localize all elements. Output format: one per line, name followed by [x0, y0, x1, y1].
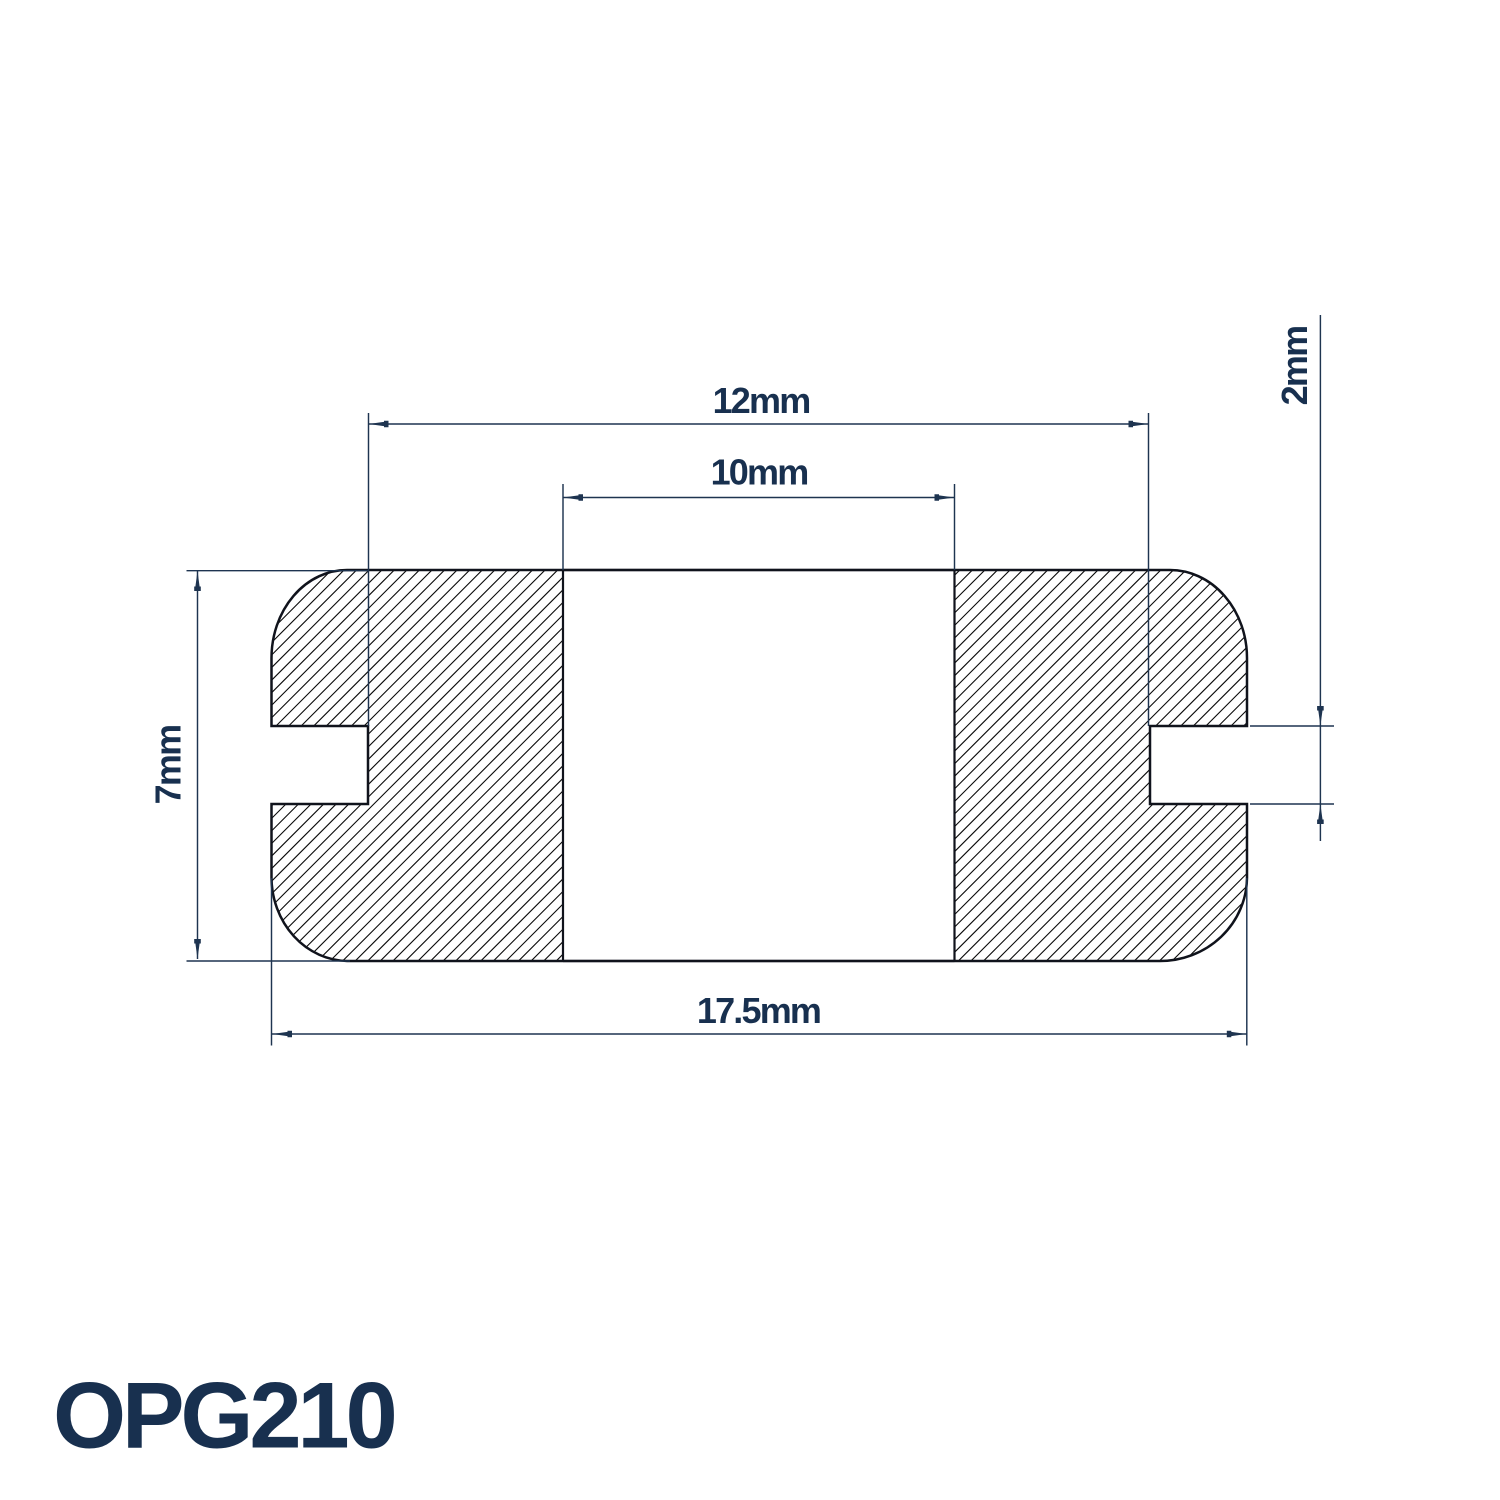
svg-text:OPG210: OPG210: [53, 1363, 394, 1468]
svg-text:12mm: 12mm: [713, 380, 810, 421]
svg-text:7mm: 7mm: [148, 726, 189, 805]
svg-text:17.5mm: 17.5mm: [697, 990, 820, 1031]
svg-text:10mm: 10mm: [711, 452, 808, 493]
svg-text:2mm: 2mm: [1274, 327, 1315, 406]
